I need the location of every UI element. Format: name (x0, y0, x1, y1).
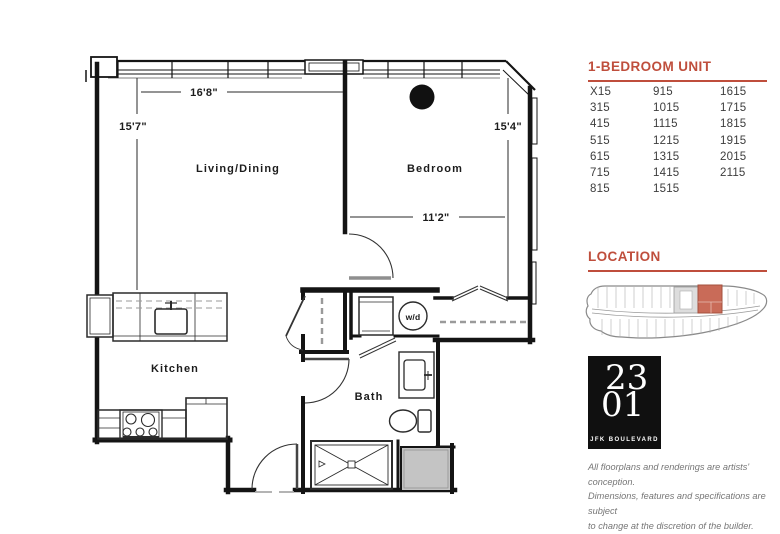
utility-cabinet (359, 297, 393, 335)
location-title: LOCATION (588, 249, 767, 272)
kitchen-peninsula-counter (113, 293, 227, 341)
refrigerator (186, 398, 227, 439)
disclaimer-line: All floorplans and renderings are artist… (588, 460, 776, 489)
building-logo: 23 01 JFK BOULEVARD (588, 356, 661, 449)
dim-living-depth: 15'7" (119, 121, 147, 133)
doors (252, 234, 396, 492)
unit-number: 1015 (653, 102, 720, 118)
unit-number: 1215 (653, 135, 720, 151)
floorplan-drawing: 15'7" 16'8" 15'4" 11'2" Living/Dining Be… (0, 0, 570, 517)
unit-number: 815 (590, 183, 653, 199)
kitchen-column (87, 295, 113, 337)
unit-number: 2015 (720, 151, 769, 167)
unit-number: 615 (590, 151, 653, 167)
highlighted-unit (698, 285, 722, 313)
unit-number-grid: X15 915 1615 315 1015 1715 415 1115 1815… (590, 86, 769, 199)
unit-number: 1815 (720, 118, 769, 134)
walls (95, 62, 533, 492)
unit-number: 1615 (720, 86, 769, 102)
disclaimer-text: All floorplans and renderings are artist… (588, 460, 776, 534)
unit-number: 315 (590, 102, 653, 118)
unit-number: 1915 (720, 135, 769, 151)
unit-number: 515 (590, 135, 653, 151)
entry-door (252, 444, 297, 492)
washer-dryer-label: w/d (405, 312, 421, 322)
unit-number: 1315 (653, 151, 720, 167)
unit-list-title: 1-BEDROOM UNIT (588, 59, 767, 82)
disclaimer-line: Dimensions, features and specifications … (588, 489, 776, 518)
structural-column (410, 85, 435, 110)
bath-label: Bath (355, 391, 384, 403)
dim-living-width: 16'8" (190, 87, 218, 99)
bath-vanity (399, 352, 434, 398)
unit-number: 1715 (720, 102, 769, 118)
shower (311, 441, 392, 489)
unit-number (720, 183, 769, 199)
unit-number: 1415 (653, 167, 720, 183)
right-wall-windows (532, 98, 537, 304)
unit-number: 415 (590, 118, 653, 134)
unit-number: 1115 (653, 118, 720, 134)
window-wall-top (86, 57, 535, 96)
living-room-label: Living/Dining (196, 163, 280, 175)
stove (120, 410, 162, 439)
kitchen-sink (155, 309, 187, 334)
dim-bedroom-depth: 15'4" (494, 121, 522, 133)
bath-sink (404, 360, 425, 390)
unit-number: 915 (653, 86, 720, 102)
unit-number: 1515 (653, 183, 720, 199)
bath-door (305, 359, 349, 403)
bath-fixtures (311, 352, 451, 491)
wall-pier (305, 60, 363, 74)
unit-number: 2115 (720, 167, 769, 183)
logo-numerals: 23 01 (588, 356, 661, 419)
bedroom-door (349, 234, 393, 278)
unit-number: X15 (590, 86, 653, 102)
unit-number: 715 (590, 167, 653, 183)
disclaimer-line: to change at the discretion of the build… (588, 519, 776, 534)
kitchen-label: Kitchen (151, 363, 199, 375)
logo-subtitle: JFK BOULEVARD (588, 437, 661, 443)
kitchen-base-counter (98, 410, 186, 439)
location-key-plan (584, 282, 772, 342)
dim-bedroom-width: 11'2" (422, 212, 449, 224)
dimension-lines (137, 78, 508, 296)
mechanical-shaft (401, 447, 451, 491)
bedroom-label: Bedroom (407, 163, 463, 175)
bifold-closet-doors (452, 286, 508, 301)
toilet (390, 410, 432, 432)
laundry-closet-door (359, 338, 396, 358)
